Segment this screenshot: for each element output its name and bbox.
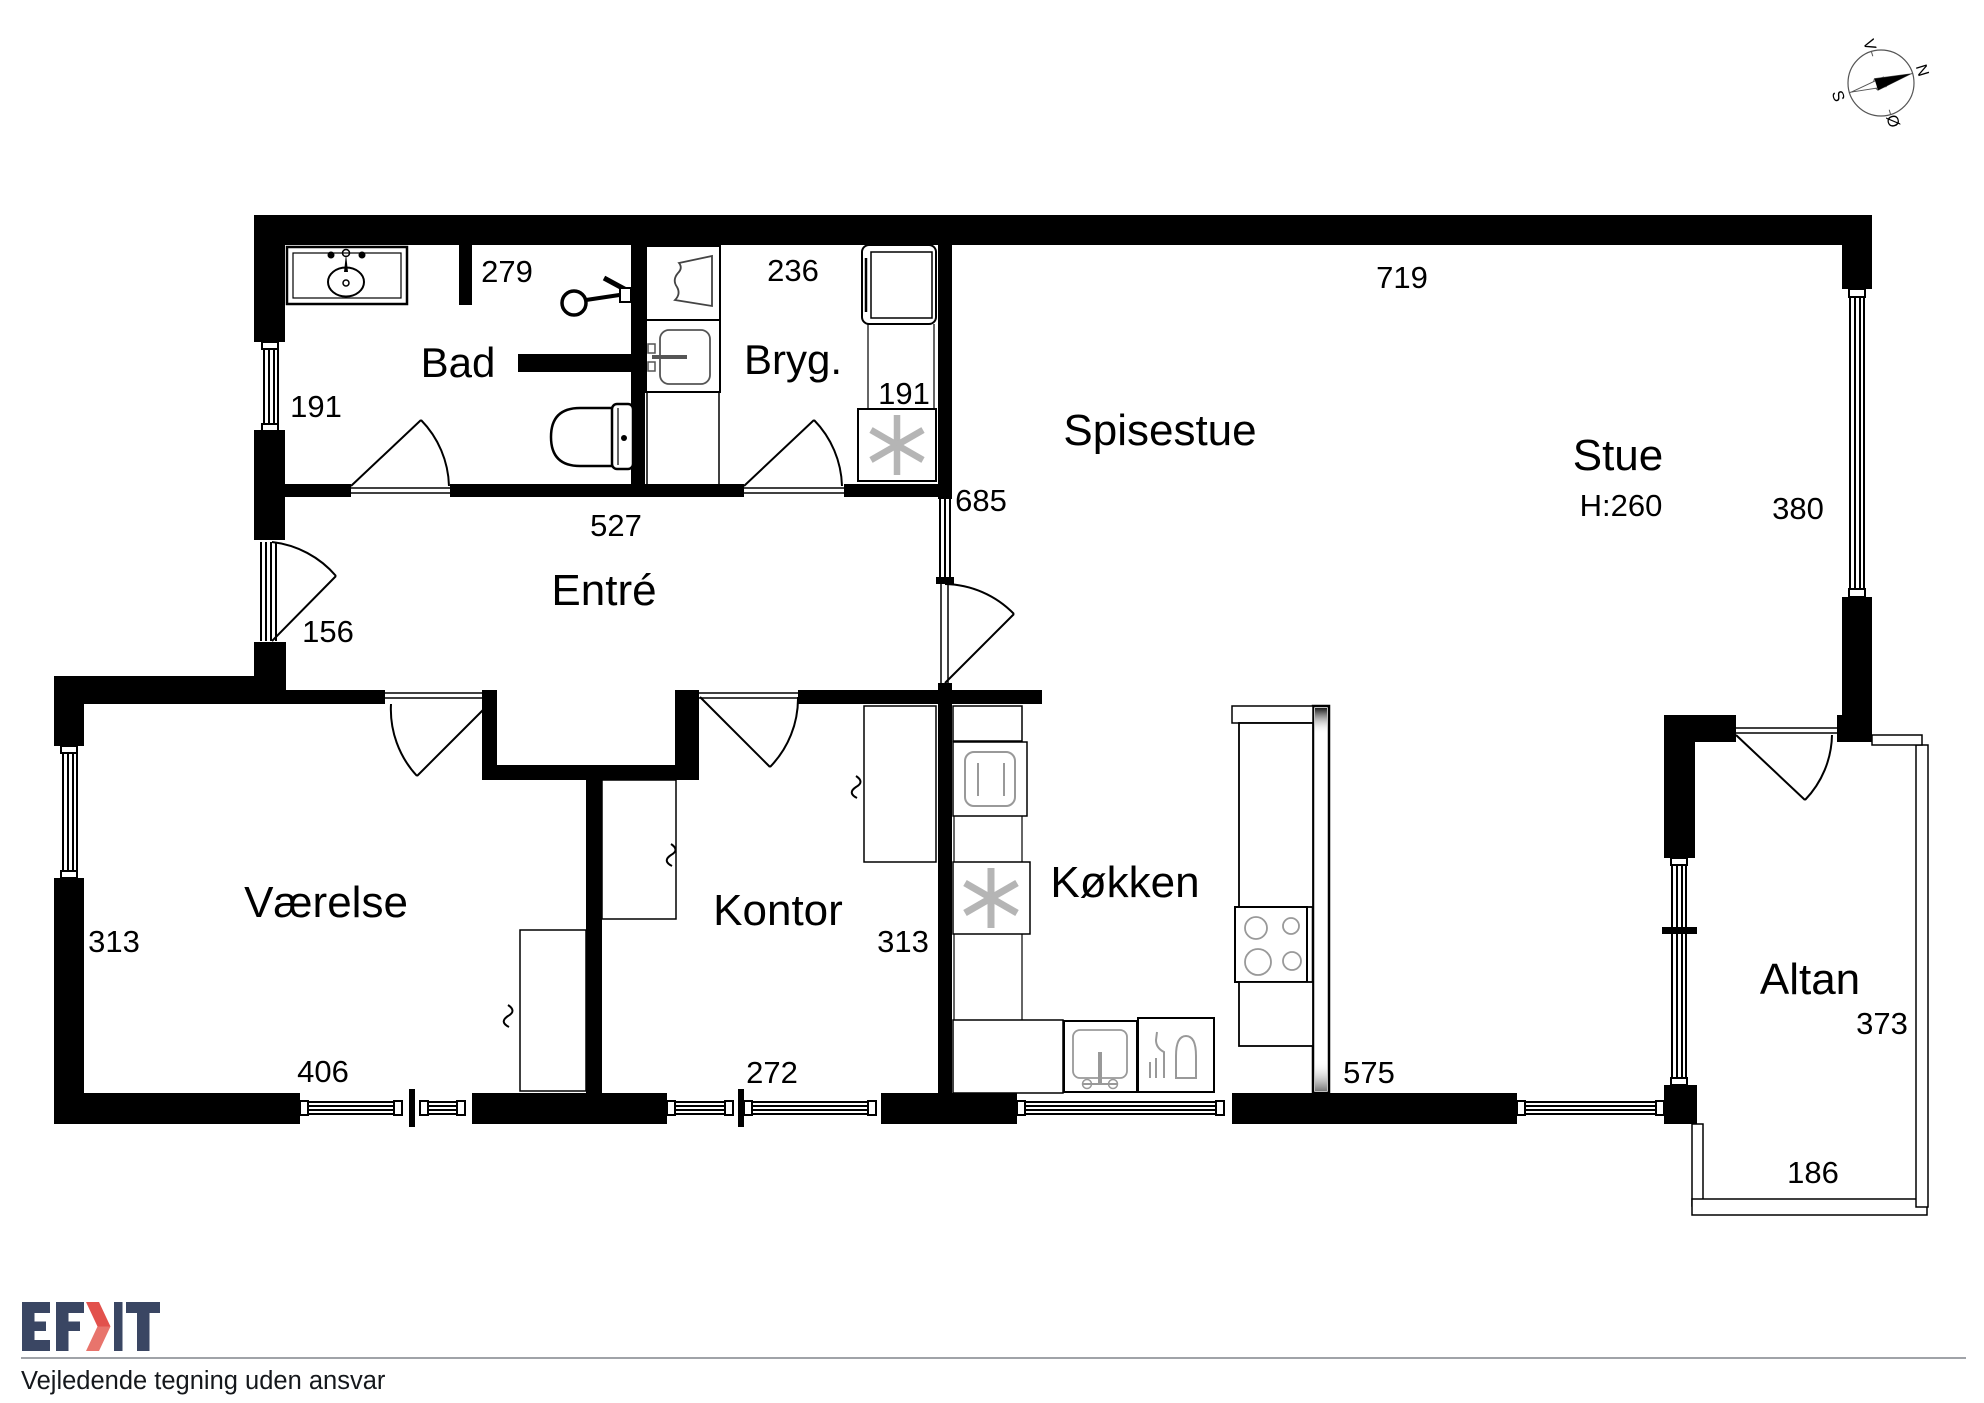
- svg-text:406: 406: [297, 1054, 349, 1089]
- svg-text:279: 279: [481, 254, 533, 289]
- svg-text:719: 719: [1376, 260, 1428, 295]
- svg-text:Stue: Stue: [1573, 431, 1664, 480]
- svg-text:Kontor: Kontor: [713, 886, 843, 935]
- svg-text:Bad: Bad: [421, 339, 496, 386]
- svg-text:Værelse: Værelse: [244, 878, 408, 927]
- svg-text:H:260: H:260: [1580, 488, 1663, 523]
- svg-text:380: 380: [1772, 491, 1824, 526]
- svg-text:575: 575: [1343, 1055, 1395, 1090]
- svg-text:373: 373: [1856, 1006, 1908, 1041]
- svg-text:Køkken: Køkken: [1050, 858, 1199, 907]
- svg-text:191: 191: [290, 389, 342, 424]
- svg-text:272: 272: [746, 1055, 798, 1090]
- svg-text:Altan: Altan: [1760, 955, 1860, 1004]
- svg-text:186: 186: [1787, 1155, 1839, 1190]
- svg-text:156: 156: [302, 614, 354, 649]
- svg-text:313: 313: [88, 924, 140, 959]
- svg-text:Entré: Entré: [551, 566, 656, 615]
- svg-text:Bryg.: Bryg.: [744, 336, 842, 383]
- svg-text:527: 527: [590, 508, 642, 543]
- svg-text:685: 685: [955, 483, 1007, 518]
- svg-text:Spisestue: Spisestue: [1063, 406, 1256, 455]
- svg-text:Vejledende tegning uden ansvar: Vejledende tegning uden ansvar: [21, 1367, 386, 1395]
- svg-text:236: 236: [767, 253, 819, 288]
- svg-text:313: 313: [877, 924, 929, 959]
- svg-text:191: 191: [878, 376, 930, 411]
